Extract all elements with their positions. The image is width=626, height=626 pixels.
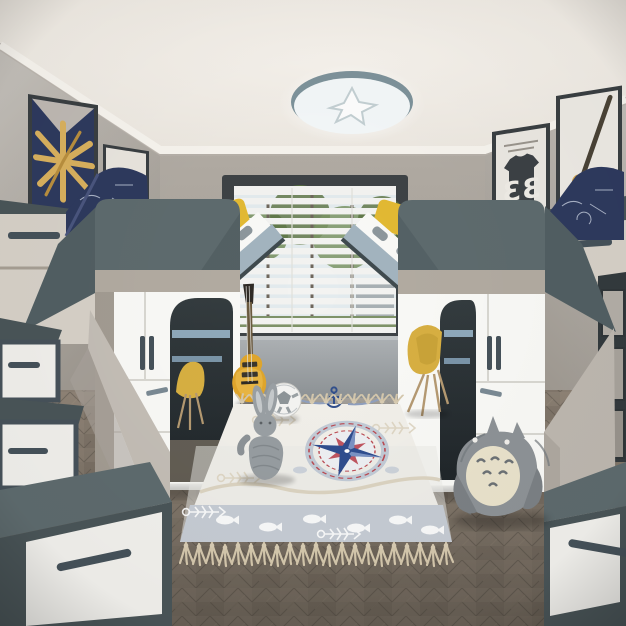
door-handle	[496, 336, 501, 370]
desk-shelf	[172, 356, 222, 362]
chest-drawer	[550, 514, 620, 616]
door-handle	[487, 336, 492, 370]
bunny-head	[254, 414, 277, 437]
door-handle	[140, 336, 145, 370]
ceiling-light	[278, 64, 426, 144]
desk-top	[444, 330, 473, 337]
desk-shelf	[444, 358, 470, 364]
drawer-handle	[8, 448, 48, 454]
drawer-handle	[8, 232, 60, 239]
totoro-belly	[466, 446, 520, 506]
step-drawer	[0, 342, 58, 400]
scene: B 33	[0, 0, 626, 626]
drawer-handle	[8, 362, 40, 368]
door-handle	[149, 336, 154, 370]
beam	[398, 270, 545, 296]
beam	[95, 270, 240, 294]
bedroom-render: B 33	[0, 0, 626, 626]
desk-top	[172, 330, 230, 338]
